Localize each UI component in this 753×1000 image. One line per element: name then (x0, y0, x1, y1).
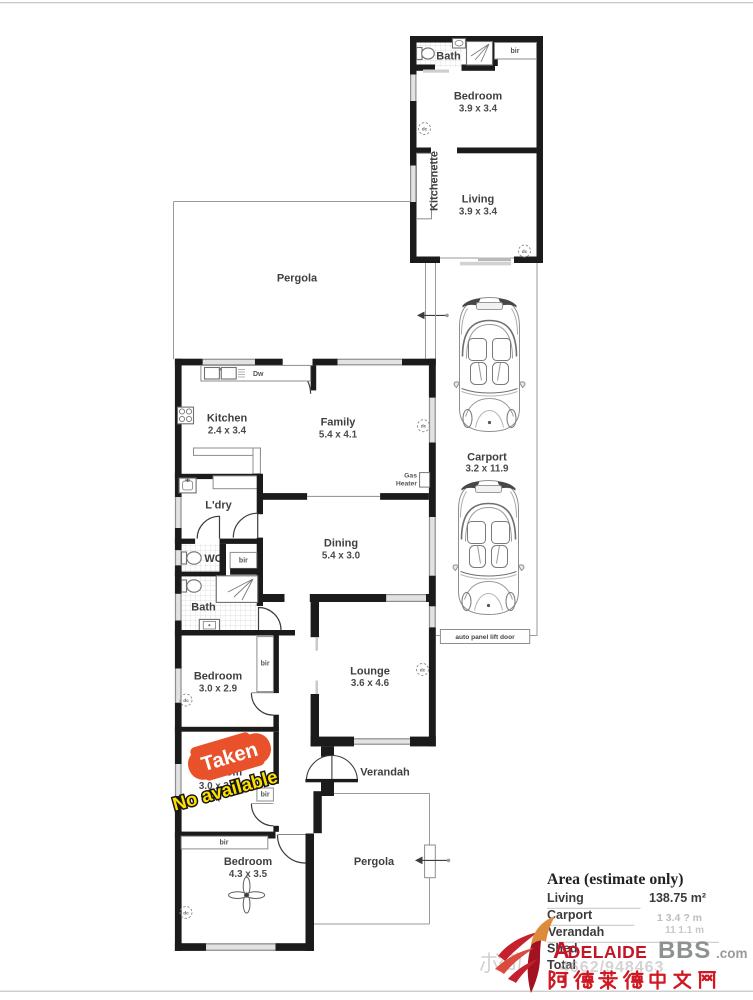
svg-text:bir: bir (220, 839, 229, 846)
svg-text:3.9 x 3.4: 3.9 x 3.4 (459, 207, 498, 218)
svg-text:138.75 m²: 138.75 m² (649, 891, 706, 905)
svg-text:auto panel lift door: auto panel lift door (455, 634, 515, 641)
svg-text:Heater: Heater (396, 481, 418, 488)
svg-text:Area (estimate only): Area (estimate only) (547, 871, 684, 888)
svg-text:Kitchen: Kitchen (207, 413, 248, 425)
svg-text:bir: bir (239, 557, 248, 564)
svg-text:Pergola: Pergola (277, 273, 318, 285)
svg-text:3.6 x 4.6: 3.6 x 4.6 (351, 678, 390, 689)
svg-text:bir: bir (511, 48, 520, 55)
svg-text:Dining: Dining (324, 538, 358, 550)
svg-text:dc: dc (183, 910, 189, 916)
svg-text:Bedroom: Bedroom (224, 856, 273, 868)
svg-text:Bath: Bath (191, 602, 216, 614)
svg-text:Dw: Dw (253, 371, 264, 378)
svg-text:Living: Living (462, 194, 494, 206)
svg-text:3.2 x 11.9: 3.2 x 11.9 (465, 464, 509, 475)
svg-text:dc: dc (522, 249, 528, 255)
svg-text:3.9 x 3.4: 3.9 x 3.4 (459, 104, 498, 115)
svg-text:Family: Family (321, 417, 357, 429)
svg-text:Bedroom: Bedroom (194, 671, 243, 683)
svg-text:BBS: BBS (658, 937, 711, 964)
svg-text:Lounge: Lounge (350, 666, 390, 678)
svg-text:3.0 x 2.9: 3.0 x 2.9 (199, 684, 238, 695)
svg-text:Verandah: Verandah (360, 767, 410, 779)
svg-text:dc: dc (422, 127, 428, 133)
svg-text:5.4 x 3.0: 5.4 x 3.0 (322, 551, 361, 562)
svg-text:L'dry: L'dry (205, 500, 232, 512)
svg-text:Bath: Bath (436, 51, 461, 63)
svg-text:dc: dc (183, 698, 189, 704)
svg-text:2.4 x 3.4: 2.4 x 3.4 (208, 426, 247, 437)
svg-text:bir: bir (261, 661, 270, 668)
svg-text:Gas: Gas (404, 473, 417, 480)
svg-text:Pergola: Pergola (354, 856, 395, 868)
svg-text:Bedroom: Bedroom (454, 91, 503, 103)
svg-text:dc: dc (421, 424, 427, 430)
svg-text:.com: .com (716, 946, 748, 961)
svg-text:Carport: Carport (547, 908, 593, 922)
svg-text:Living: Living (547, 891, 584, 905)
svg-text:Carport: Carport (467, 452, 507, 464)
svg-text:11 1.1 m: 11 1.1 m (665, 925, 704, 936)
svg-text:Kitchenette: Kitchenette (429, 151, 441, 211)
svg-text:bir: bir (261, 792, 270, 799)
svg-text:1 3.4 ? m: 1 3.4 ? m (657, 912, 702, 924)
svg-text:dc: dc (420, 667, 426, 673)
svg-text:5.4 x 4.1: 5.4 x 4.1 (319, 430, 358, 441)
